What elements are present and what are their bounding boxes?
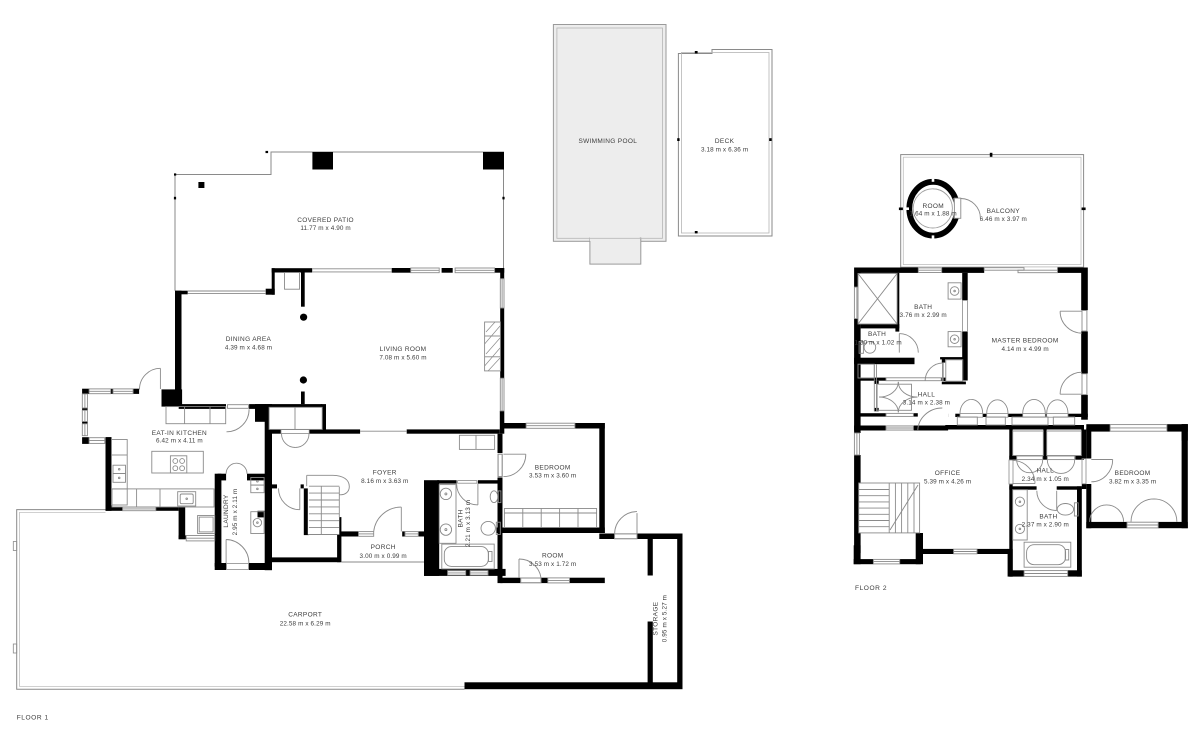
svg-text:3.53 m x 1.72 m: 3.53 m x 1.72 m (529, 561, 576, 568)
svg-text:DECK: DECK (715, 138, 735, 145)
svg-text:3.00 m x 0.99 m: 3.00 m x 0.99 m (360, 553, 407, 560)
svg-text:0.95 m x 5.27 m: 0.95 m x 5.27 m (662, 595, 669, 642)
svg-text:EAT-IN KITCHEN: EAT-IN KITCHEN (152, 430, 207, 437)
svg-text:HALL: HALL (1037, 468, 1055, 475)
svg-text:3.53 m x 3.60 m: 3.53 m x 3.60 m (529, 472, 576, 479)
svg-text:OFFICE: OFFICE (935, 470, 961, 477)
svg-text:BATH: BATH (458, 509, 465, 527)
svg-text:BEDROOM: BEDROOM (535, 464, 571, 471)
svg-text:6.42 m x 4.11 m: 6.42 m x 4.11 m (156, 438, 203, 445)
svg-text:2.37 m x 2.90 m: 2.37 m x 2.90 m (1022, 522, 1069, 529)
svg-text:2.95 m x 2.11 m: 2.95 m x 2.11 m (232, 489, 239, 536)
svg-text:4.39 m x 4.68 m: 4.39 m x 4.68 m (225, 344, 272, 351)
svg-text:LIVING ROOM: LIVING ROOM (380, 346, 427, 353)
svg-text:ROOM: ROOM (922, 203, 944, 210)
svg-text:MASTER BEDROOM: MASTER BEDROOM (992, 337, 1059, 344)
svg-text:3.14 m x 2.38 m: 3.14 m x 2.38 m (903, 400, 950, 407)
svg-text:1.64 m x 1.88 m: 1.64 m x 1.88 m (910, 211, 957, 218)
svg-text:COVERED PATIO: COVERED PATIO (297, 217, 354, 224)
svg-text:PORCH: PORCH (371, 544, 396, 551)
svg-text:22.58 m x 6.29 m: 22.58 m x 6.29 m (280, 620, 331, 627)
svg-text:LAUNDRY: LAUNDRY (223, 494, 230, 528)
svg-text:BATH: BATH (914, 304, 932, 311)
svg-text:2.34 m x 1.05 m: 2.34 m x 1.05 m (1022, 476, 1069, 483)
svg-text:3.76 m x 2.99 m: 3.76 m x 2.99 m (900, 312, 947, 319)
svg-text:FLOOR 1: FLOOR 1 (17, 715, 49, 722)
svg-text:DINING AREA: DINING AREA (226, 336, 272, 343)
svg-text:ROOM: ROOM (542, 553, 564, 560)
svg-text:7.08 m x 5.60 m: 7.08 m x 5.60 m (379, 354, 426, 361)
svg-text:STORAGE: STORAGE (653, 601, 660, 635)
svg-text:BATH: BATH (1039, 514, 1057, 521)
svg-text:2.21 m x 3.13 m: 2.21 m x 3.13 m (465, 500, 472, 547)
svg-text:FLOOR 2: FLOOR 2 (855, 585, 887, 592)
svg-text:FOYER: FOYER (373, 470, 397, 477)
svg-text:1.30 m x 1.02 m: 1.30 m x 1.02 m (854, 339, 901, 346)
svg-text:BATH: BATH (868, 331, 886, 338)
svg-text:CARPORT: CARPORT (288, 612, 322, 619)
svg-text:4.14 m x 4.99 m: 4.14 m x 4.99 m (1001, 346, 1048, 353)
svg-text:3.18 m x 6.36 m: 3.18 m x 6.36 m (701, 147, 748, 154)
svg-text:11.77 m x 4.90 m: 11.77 m x 4.90 m (300, 225, 350, 232)
svg-text:6.46 m x 3.97 m: 6.46 m x 3.97 m (980, 216, 1027, 223)
svg-text:BALCONY: BALCONY (987, 208, 1021, 215)
svg-text:SWIMMING POOL: SWIMMING POOL (578, 138, 637, 145)
svg-text:5.39 m x 4.26 m: 5.39 m x 4.26 m (924, 479, 971, 486)
svg-text:3.82 m x 3.35 m: 3.82 m x 3.35 m (1109, 478, 1156, 485)
svg-text:HALL: HALL (918, 391, 936, 398)
svg-text:BEDROOM: BEDROOM (1115, 470, 1151, 477)
svg-text:8.16 m x 3.63 m: 8.16 m x 3.63 m (361, 478, 408, 485)
